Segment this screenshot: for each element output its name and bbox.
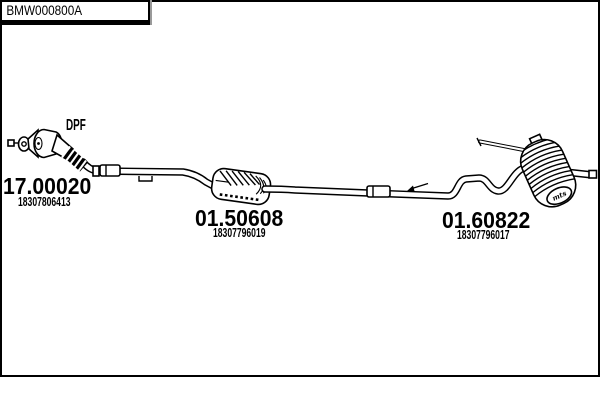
- mid-pipe-drawing: [265, 165, 532, 196]
- drawing-reference: BMW000800A: [2, 2, 129, 20]
- tail-pipe-end: [589, 171, 597, 179]
- dpf-unit-drawing: [8, 130, 86, 172]
- part-oem-centre: 18307796019: [213, 226, 265, 240]
- pipe-bracket-tab: [139, 176, 152, 181]
- dpf-label: DPF: [66, 118, 86, 135]
- dpf-inlet-stud: [8, 140, 14, 146]
- exhaust-diagram-page: mts DPF 17.00020 18307806413 01.50608 18…: [0, 0, 600, 400]
- part-oem-front: 18307806413: [18, 195, 70, 209]
- pipe-sleeve-front: [100, 165, 120, 176]
- pipe-sleeve-mid: [367, 186, 390, 197]
- rear-silencer-drawing: mts: [512, 129, 582, 214]
- part-oem-rear: 18307796017: [457, 228, 509, 242]
- exhaust-line-art: mts: [0, 0, 600, 400]
- pipe-clamp-front: [93, 166, 99, 176]
- drawing-reference-box: BMW000800A: [0, 0, 150, 25]
- rubber-hanger: [407, 184, 428, 192]
